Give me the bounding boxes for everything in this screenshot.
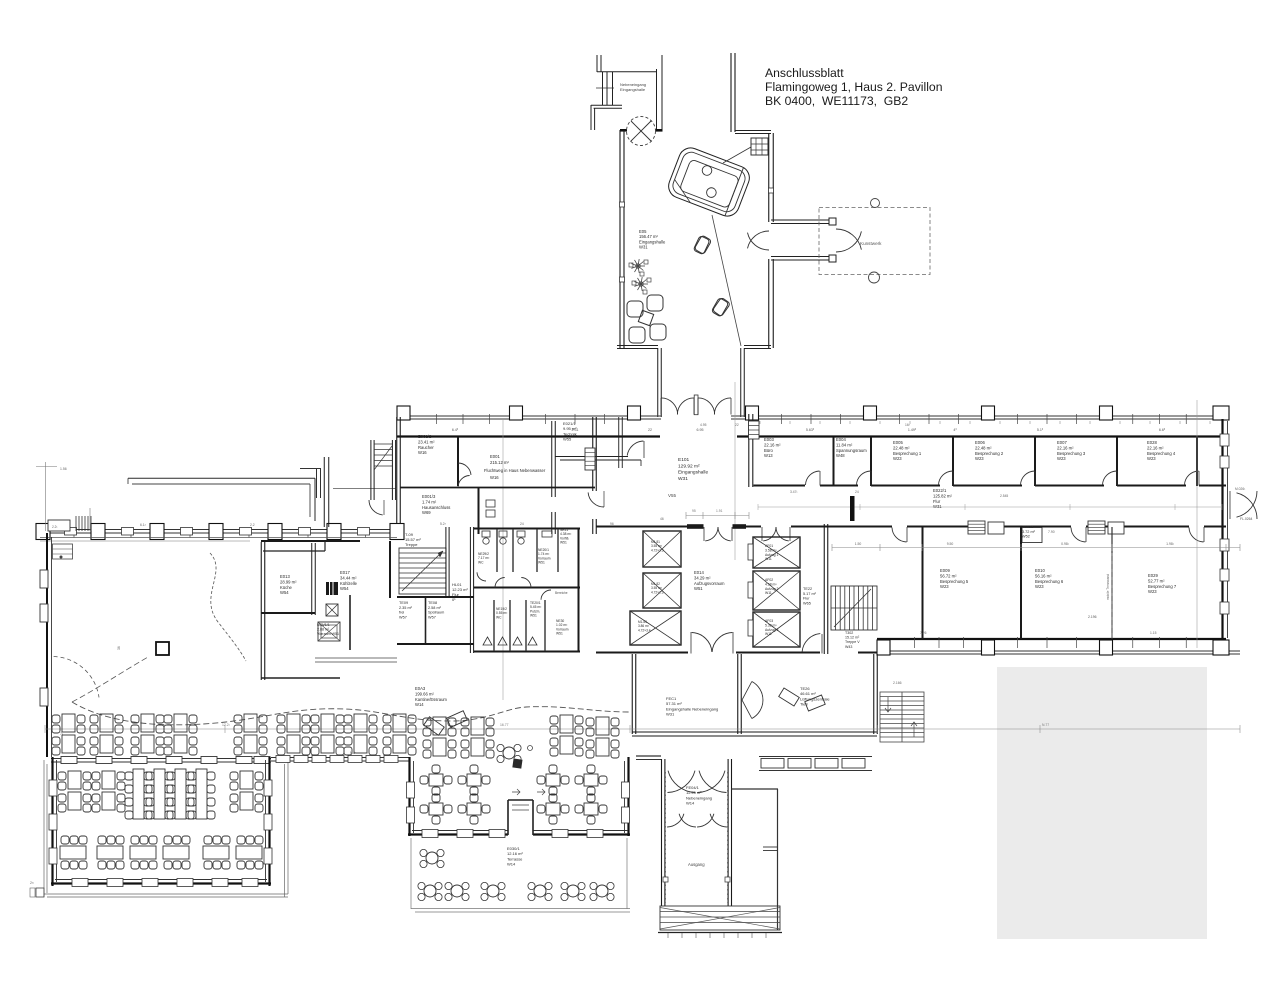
svg-text:E013: E013 [280, 574, 290, 579]
svg-text:Aufzug 2: Aufzug 2 [765, 587, 778, 591]
svg-text:N.77: N.77 [1042, 723, 1049, 727]
svg-text:4.72×2.3: 4.72×2.3 [651, 548, 664, 552]
svg-text:0.98¹: 0.98¹ [1061, 542, 1070, 546]
svg-text:56.16 m²: 56.16 m² [1035, 573, 1052, 578]
svg-text:WC: WC [478, 560, 484, 564]
svg-text:W11: W11 [765, 557, 772, 561]
svg-text:5.63³: 5.63³ [806, 428, 815, 432]
svg-text:22.48 m²: 22.48 m² [893, 445, 910, 450]
svg-text:TE08: TE08 [428, 601, 437, 605]
svg-text:12.2¹: 12.2¹ [222, 723, 231, 727]
svg-text:Besprechung 3: Besprechung 3 [1057, 451, 1086, 456]
svg-text:W14: W14 [507, 862, 516, 867]
svg-text:3.72 m²: 3.72 m² [1022, 530, 1036, 534]
svg-text:Raucher: Raucher [418, 445, 434, 450]
svg-text:22.16 m²: 22.16 m² [1057, 445, 1074, 450]
svg-text:125.82 m²: 125.82 m² [933, 493, 952, 498]
svg-text:5.1³: 5.1³ [1037, 428, 1044, 432]
svg-text:3.47¹: 3.47¹ [790, 490, 798, 494]
svg-text:E007: E007 [1057, 440, 1067, 445]
svg-text:Flur: Flur [803, 597, 810, 601]
svg-text:7.26: 7.26 [920, 631, 927, 635]
svg-text:W14: W14 [415, 702, 424, 707]
svg-text:E010: E010 [1035, 568, 1045, 573]
svg-text:1.91: 1.91 [716, 509, 723, 513]
svg-text:V55: V55 [668, 493, 677, 498]
svg-text:E017: E017 [340, 570, 350, 575]
svg-text:W11: W11 [765, 591, 772, 595]
svg-text:6.4³: 6.4³ [452, 428, 459, 432]
svg-text:22.16 m²: 22.16 m² [1147, 445, 1164, 450]
svg-text:4.95: 4.95 [700, 423, 707, 427]
svg-text:7.90: 7.90 [1048, 530, 1055, 534]
svg-text:1.74 m²: 1.74 m² [422, 499, 437, 504]
svg-text:W54: W54 [280, 590, 289, 595]
svg-text:15.12 m²: 15.12 m² [845, 636, 860, 640]
svg-text:Besprechung 2: Besprechung 2 [975, 451, 1004, 456]
svg-text:6.6³: 6.6³ [1159, 428, 1166, 432]
svg-text:1.15: 1.15 [1150, 631, 1157, 635]
svg-text:W31: W31 [639, 245, 648, 250]
svg-text:mobile Trennwand: mobile Trennwand [1106, 574, 1110, 600]
svg-text:T302: T302 [845, 631, 853, 635]
svg-text:Besprechung 1: Besprechung 1 [893, 451, 922, 456]
svg-text:199.66 m²: 199.66 m² [415, 691, 434, 696]
svg-text:215.12 m²: 215.12 m² [490, 460, 509, 465]
svg-text:Kantine/Essraum: Kantine/Essraum [415, 697, 447, 702]
svg-text:2.196: 2.196 [1088, 615, 1097, 619]
svg-text:3.58 m²: 3.58 m² [765, 548, 777, 552]
svg-text:N.2¹: N.2¹ [350, 751, 357, 755]
svg-text:4.58 m²: 4.58 m² [765, 582, 777, 586]
svg-text:W51: W51 [694, 586, 703, 591]
svg-text:TE09: TE09 [399, 601, 408, 605]
svg-text:22.48 m²: 22.48 m² [975, 445, 992, 450]
svg-text:28.99 m²: 28.99 m² [280, 579, 297, 584]
svg-text:2.2: 2.2 [250, 523, 255, 527]
svg-text:1.50: 1.50 [855, 542, 862, 546]
svg-text:Aufzug 1: Aufzug 1 [765, 553, 778, 557]
svg-text:Flamingoweg 1, Haus 2. Pavillo: Flamingoweg 1, Haus 2. Pavillon [765, 80, 943, 94]
svg-text:Flur: Flur [933, 499, 941, 504]
svg-text:Küche: Küche [280, 585, 293, 590]
svg-text:24: 24 [520, 522, 524, 526]
svg-text:Fluchtweg in Haus Nebenwasser: Fluchtweg in Haus Nebenwasser [484, 468, 546, 473]
svg-text:Vorraum W51: Vorraum W51 [317, 632, 339, 636]
svg-text:W51: W51 [556, 632, 563, 636]
svg-text:W57: W57 [399, 615, 407, 619]
svg-text:AF01: AF01 [765, 544, 773, 548]
svg-text:W14: W14 [686, 801, 695, 806]
svg-text:11.84 m²: 11.84 m² [836, 442, 853, 447]
svg-text:2.2¹: 2.2¹ [52, 525, 58, 529]
svg-text:W23: W23 [1147, 456, 1156, 461]
svg-text:E0A3: E0A3 [415, 686, 426, 691]
svg-text:frei: frei [399, 611, 404, 615]
svg-text:Spülraum: Spülraum [428, 611, 444, 615]
svg-text:Aufzugsvorraum: Aufzugsvorraum [694, 581, 725, 586]
svg-text:5.17 m²: 5.17 m² [803, 592, 817, 596]
svg-text:36: 36 [117, 646, 121, 650]
svg-text:6.1²: 6.1² [140, 523, 147, 527]
svg-text:W55: W55 [563, 437, 572, 442]
svg-text:Spannungsraum: Spannungsraum [836, 448, 867, 453]
svg-text:2.545: 2.545 [1000, 494, 1008, 498]
svg-text:Eingangshalle: Eingangshalle [678, 470, 708, 476]
svg-text:56.72 m²: 56.72 m² [940, 573, 957, 578]
svg-text:Hausanschluss: Hausanschluss [422, 505, 450, 510]
svg-text:W11: W11 [765, 632, 772, 636]
svg-text:Aufzug 3: Aufzug 3 [765, 628, 778, 632]
svg-text:Besprechung 6: Besprechung 6 [1035, 579, 1064, 584]
svg-text:W43: W43 [845, 645, 852, 649]
svg-text:1.49³: 1.49³ [908, 428, 917, 432]
svg-text:Eingangshalle: Eingangshalle [620, 87, 646, 92]
svg-text:W57: W57 [428, 615, 436, 619]
svg-text:Besprechung 5: Besprechung 5 [940, 579, 969, 584]
svg-text:16.77: 16.77 [500, 723, 509, 727]
svg-text:MEV1/1: MEV1/1 [317, 623, 330, 627]
svg-text:22: 22 [735, 423, 739, 427]
svg-text:Büro: Büro [764, 448, 774, 453]
svg-text:E004: E004 [836, 437, 846, 442]
svg-text:2.58 m²: 2.58 m² [428, 606, 442, 610]
svg-text:E014: E014 [694, 570, 704, 575]
svg-text:TE22: TE22 [803, 587, 812, 591]
svg-text:Treppe: Treppe [405, 542, 418, 547]
svg-text:W23: W23 [975, 456, 984, 461]
svg-text:22: 22 [648, 428, 652, 432]
svg-text:W23: W23 [893, 456, 902, 461]
svg-text:Kühlzelle: Kühlzelle [340, 581, 358, 586]
svg-text:23.41 m²: 23.41 m² [418, 439, 435, 444]
svg-text:Anschlussblatt: Anschlussblatt [765, 66, 844, 80]
svg-text:96: 96 [610, 522, 614, 526]
svg-text:2.35 m²: 2.35 m² [399, 606, 413, 610]
svg-text:Besprechung 7: Besprechung 7 [1148, 584, 1177, 589]
svg-text:Besprechung 4: Besprechung 4 [1147, 451, 1176, 456]
svg-text:2.166: 2.166 [893, 681, 902, 685]
svg-text:BK 0400, WE11173, GB2: BK 0400, WE11173, GB2 [765, 94, 908, 108]
svg-text:2×: 2× [30, 881, 34, 885]
svg-text:24: 24 [855, 490, 859, 494]
svg-text:Treppe V: Treppe V [845, 640, 860, 644]
svg-text:9.50: 9.50 [947, 542, 954, 546]
svg-text:4.72×2.3: 4.72×2.3 [651, 590, 664, 594]
svg-text:W48: W48 [836, 453, 845, 458]
svg-text:6.95: 6.95 [697, 428, 704, 432]
svg-text:E006: E006 [975, 440, 985, 445]
svg-text:E001/2: E001/2 [418, 434, 432, 439]
svg-text:95: 95 [692, 509, 696, 513]
svg-text:W16: W16 [418, 450, 427, 455]
svg-text:22.16 m²: 22.16 m² [764, 442, 781, 447]
svg-text:E028: E028 [1147, 440, 1157, 445]
svg-text:Bereiche: Bereiche [555, 591, 568, 595]
svg-text:WC: WC [496, 615, 502, 619]
svg-text:M.026¹: M.026¹ [1235, 487, 1246, 491]
svg-text:W65: W65 [803, 601, 811, 605]
svg-text:E003: E003 [764, 437, 774, 442]
svg-text:W51: W51 [538, 561, 545, 565]
svg-text:FL.0264: FL.0264 [1240, 517, 1253, 521]
svg-text:W13: W13 [764, 453, 773, 458]
svg-text:AF03: AF03 [765, 619, 773, 623]
svg-text:E001: E001 [490, 454, 500, 459]
svg-text:W52: W52 [1022, 535, 1030, 539]
svg-text:E005: E005 [893, 440, 903, 445]
svg-text:AF02: AF02 [765, 578, 773, 582]
svg-text:E101: E101 [678, 457, 690, 463]
svg-text:W23: W23 [1057, 456, 1066, 461]
svg-text:E022/1: E022/1 [933, 488, 947, 493]
svg-text:TE02a: TE02a [1022, 525, 1034, 529]
svg-text:1.98¹: 1.98¹ [1166, 542, 1175, 546]
svg-text:E009: E009 [940, 568, 950, 573]
svg-text:Ausgang: Ausgang [688, 862, 705, 867]
svg-text:W54: W54 [340, 586, 349, 591]
svg-text:W51: W51 [560, 541, 567, 545]
svg-text:1.56: 1.56 [60, 467, 67, 471]
svg-text:5.2³: 5.2³ [440, 522, 447, 526]
svg-text:W51: W51 [530, 614, 537, 618]
svg-text:W16: W16 [490, 475, 499, 480]
svg-text:4.72×3.4: 4.72×3.4 [638, 628, 651, 632]
svg-text:34.29 m²: 34.29 m² [694, 575, 711, 580]
svg-text:46: 46 [660, 517, 664, 521]
svg-text:W23: W23 [940, 584, 949, 589]
svg-text:Kunstwerk: Kunstwerk [860, 241, 882, 246]
svg-text:129.92 m²: 129.92 m² [678, 463, 700, 469]
svg-text:W23: W23 [1035, 584, 1044, 589]
svg-text:2.88 m²: 2.88 m² [317, 628, 330, 632]
svg-text:W31: W31 [666, 712, 675, 717]
svg-text:E029: E029 [1148, 573, 1158, 578]
svg-text:5.38 m²: 5.38 m² [765, 623, 777, 627]
svg-text:W23: W23 [1148, 589, 1157, 594]
svg-text:52.77 m²: 52.77 m² [1148, 578, 1165, 583]
svg-text:34.44 m²: 34.44 m² [340, 575, 357, 580]
svg-text:Tie3: Tie3 [800, 702, 808, 707]
svg-text:W31: W31 [933, 504, 942, 509]
svg-text:E001/3: E001/3 [422, 494, 436, 499]
svg-text:W31: W31 [678, 476, 688, 482]
svg-text:W69: W69 [422, 510, 431, 515]
